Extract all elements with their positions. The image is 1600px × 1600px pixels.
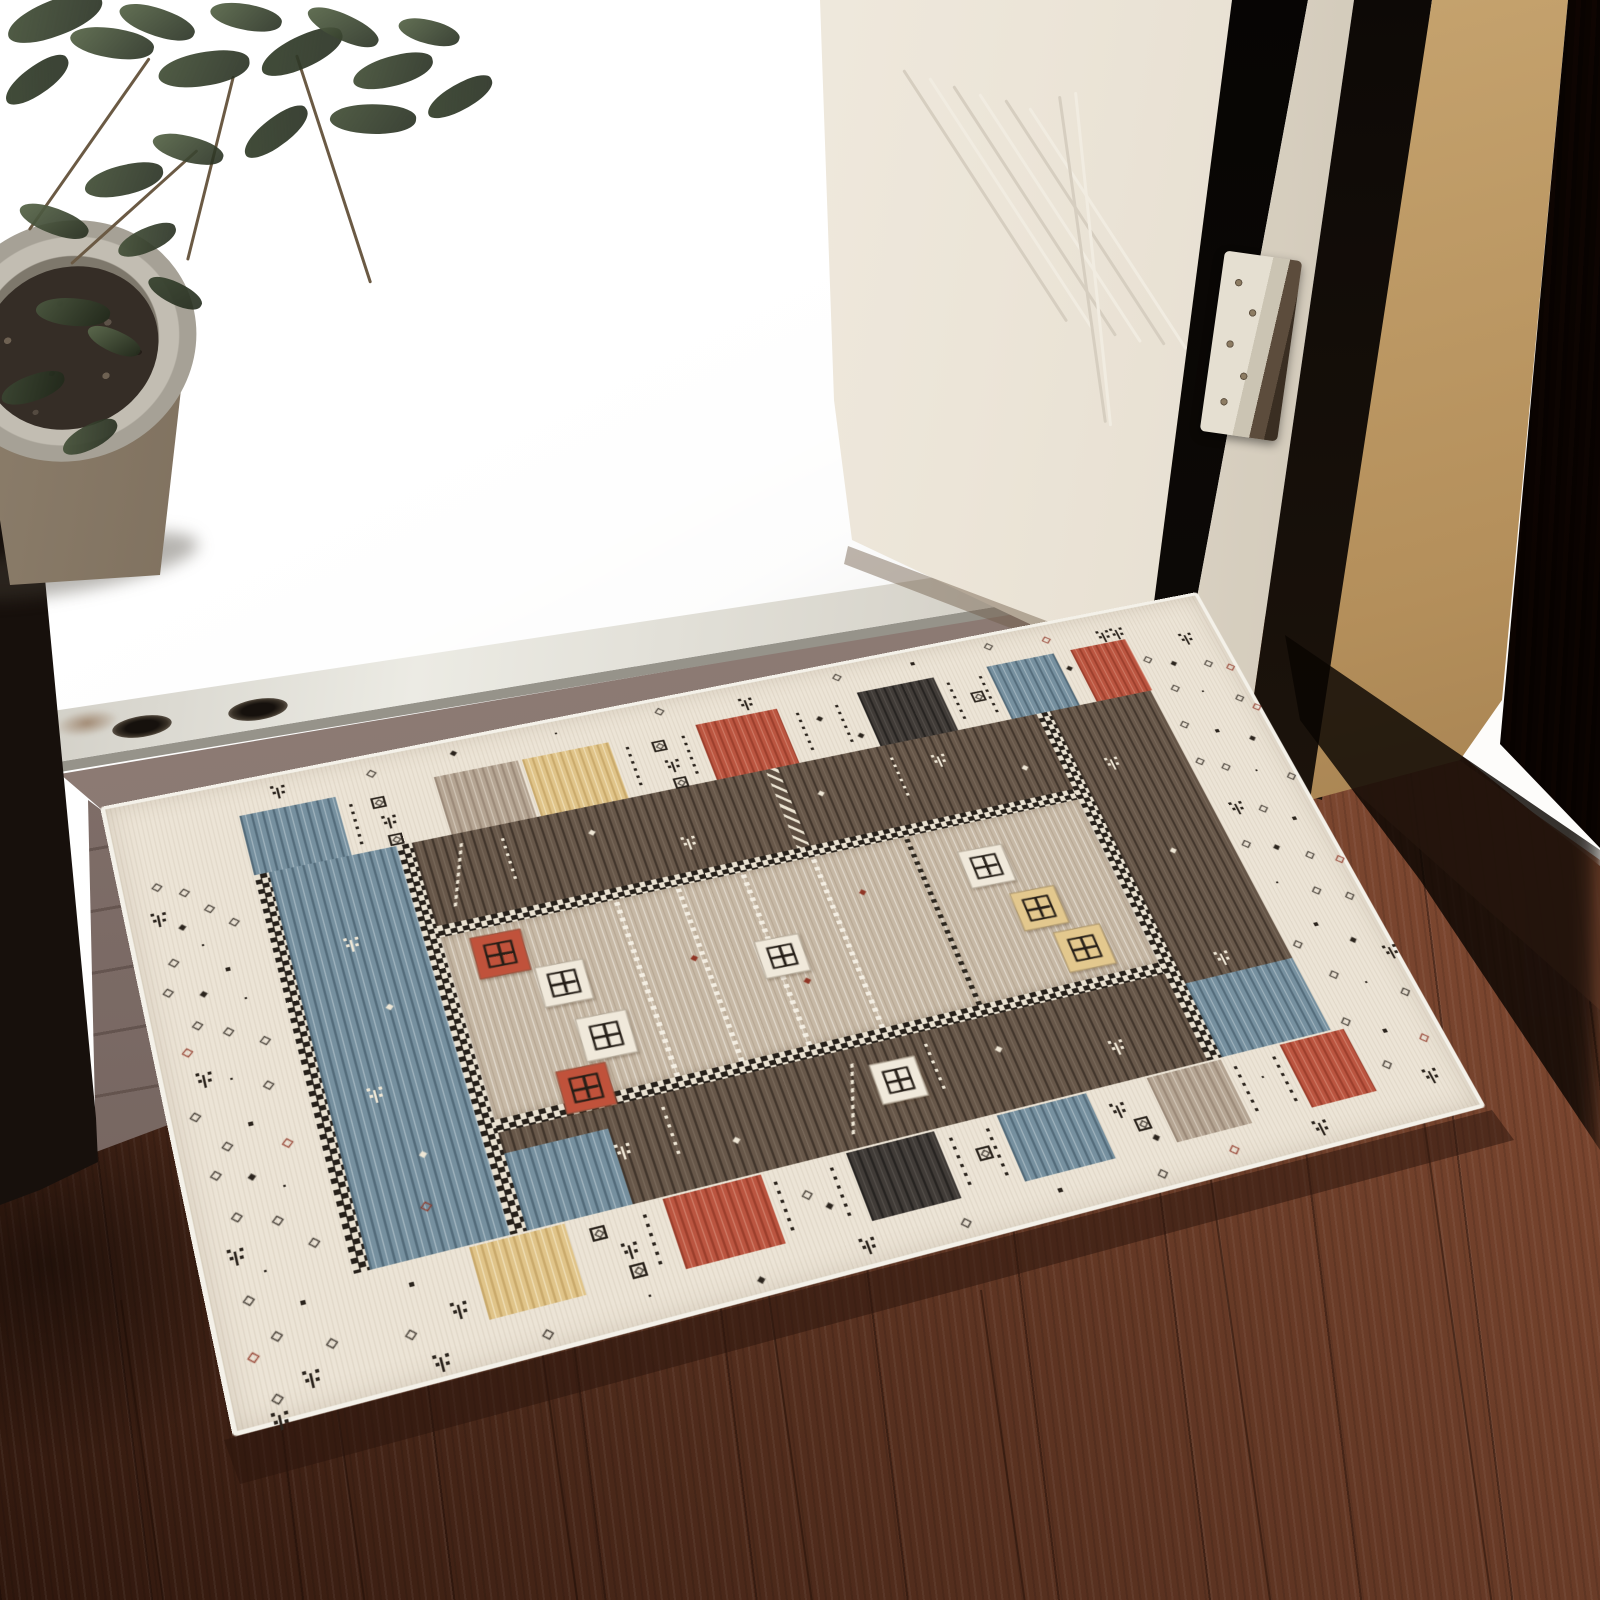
plant-leaf	[0, 366, 68, 409]
plant-leaf	[237, 99, 316, 165]
plant-leaf	[396, 11, 462, 53]
plant-leaf	[144, 269, 205, 317]
plant-leaf	[208, 0, 284, 38]
plant-leaf	[422, 70, 498, 125]
plant-leaf	[84, 318, 144, 364]
product-photo	[0, 0, 1600, 1600]
plant-leaf	[350, 48, 436, 94]
plant-leaf	[16, 194, 92, 247]
plant-leaf	[58, 414, 123, 460]
plant-leaf	[329, 101, 417, 137]
plant-leaf	[82, 158, 166, 201]
plant-leaf	[114, 218, 180, 262]
plant-stem	[295, 55, 372, 284]
plant-leaf	[156, 47, 251, 90]
potted-plant	[0, 0, 1600, 1600]
plant-stem	[186, 76, 234, 261]
plant-leaf	[0, 49, 76, 112]
